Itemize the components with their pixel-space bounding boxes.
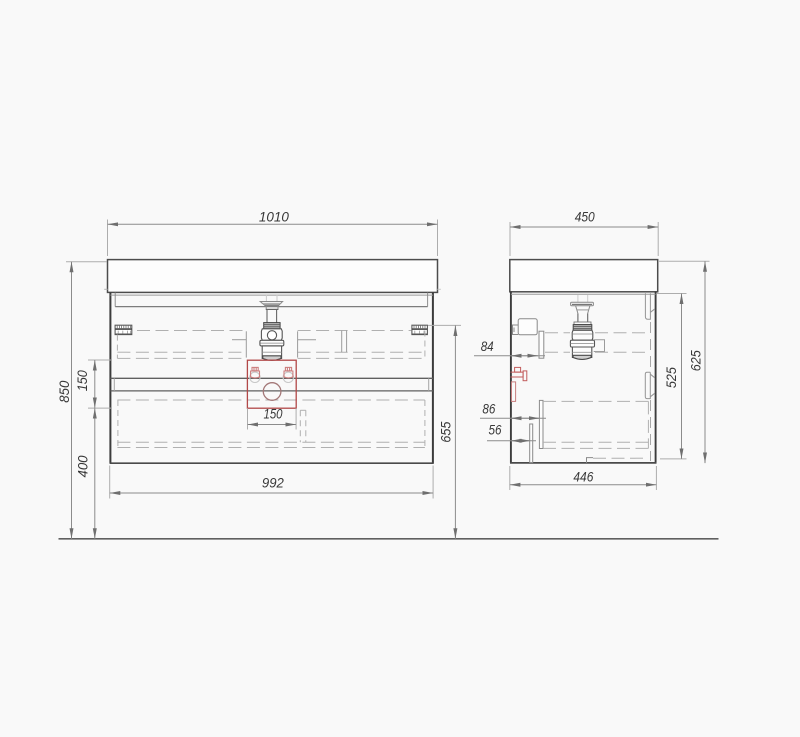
svg-text:655: 655 xyxy=(437,421,453,442)
svg-text:400: 400 xyxy=(74,455,90,477)
svg-text:150: 150 xyxy=(264,406,283,422)
svg-text:86: 86 xyxy=(482,401,495,417)
svg-text:992: 992 xyxy=(262,475,284,491)
svg-text:84: 84 xyxy=(481,338,494,354)
svg-text:525: 525 xyxy=(663,367,679,388)
svg-text:1010: 1010 xyxy=(259,208,289,224)
svg-text:150: 150 xyxy=(74,370,90,391)
svg-text:446: 446 xyxy=(573,469,593,485)
svg-text:625: 625 xyxy=(688,350,704,371)
svg-text:450: 450 xyxy=(575,208,595,224)
svg-text:56: 56 xyxy=(489,421,502,437)
svg-text:850: 850 xyxy=(56,380,72,402)
